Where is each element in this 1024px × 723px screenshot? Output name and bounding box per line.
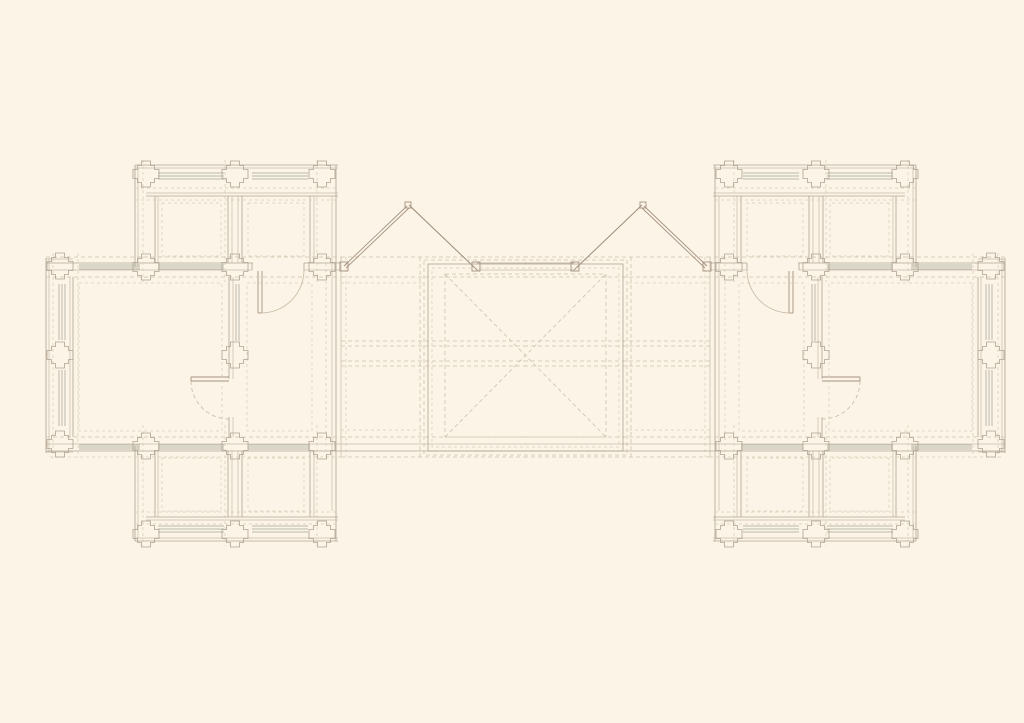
drawing-canvas [0, 0, 1024, 723]
central-hall [424, 260, 627, 455]
right-wing [525, 160, 1005, 547]
left-wing [46, 160, 526, 547]
floor-plan [0, 0, 1024, 723]
